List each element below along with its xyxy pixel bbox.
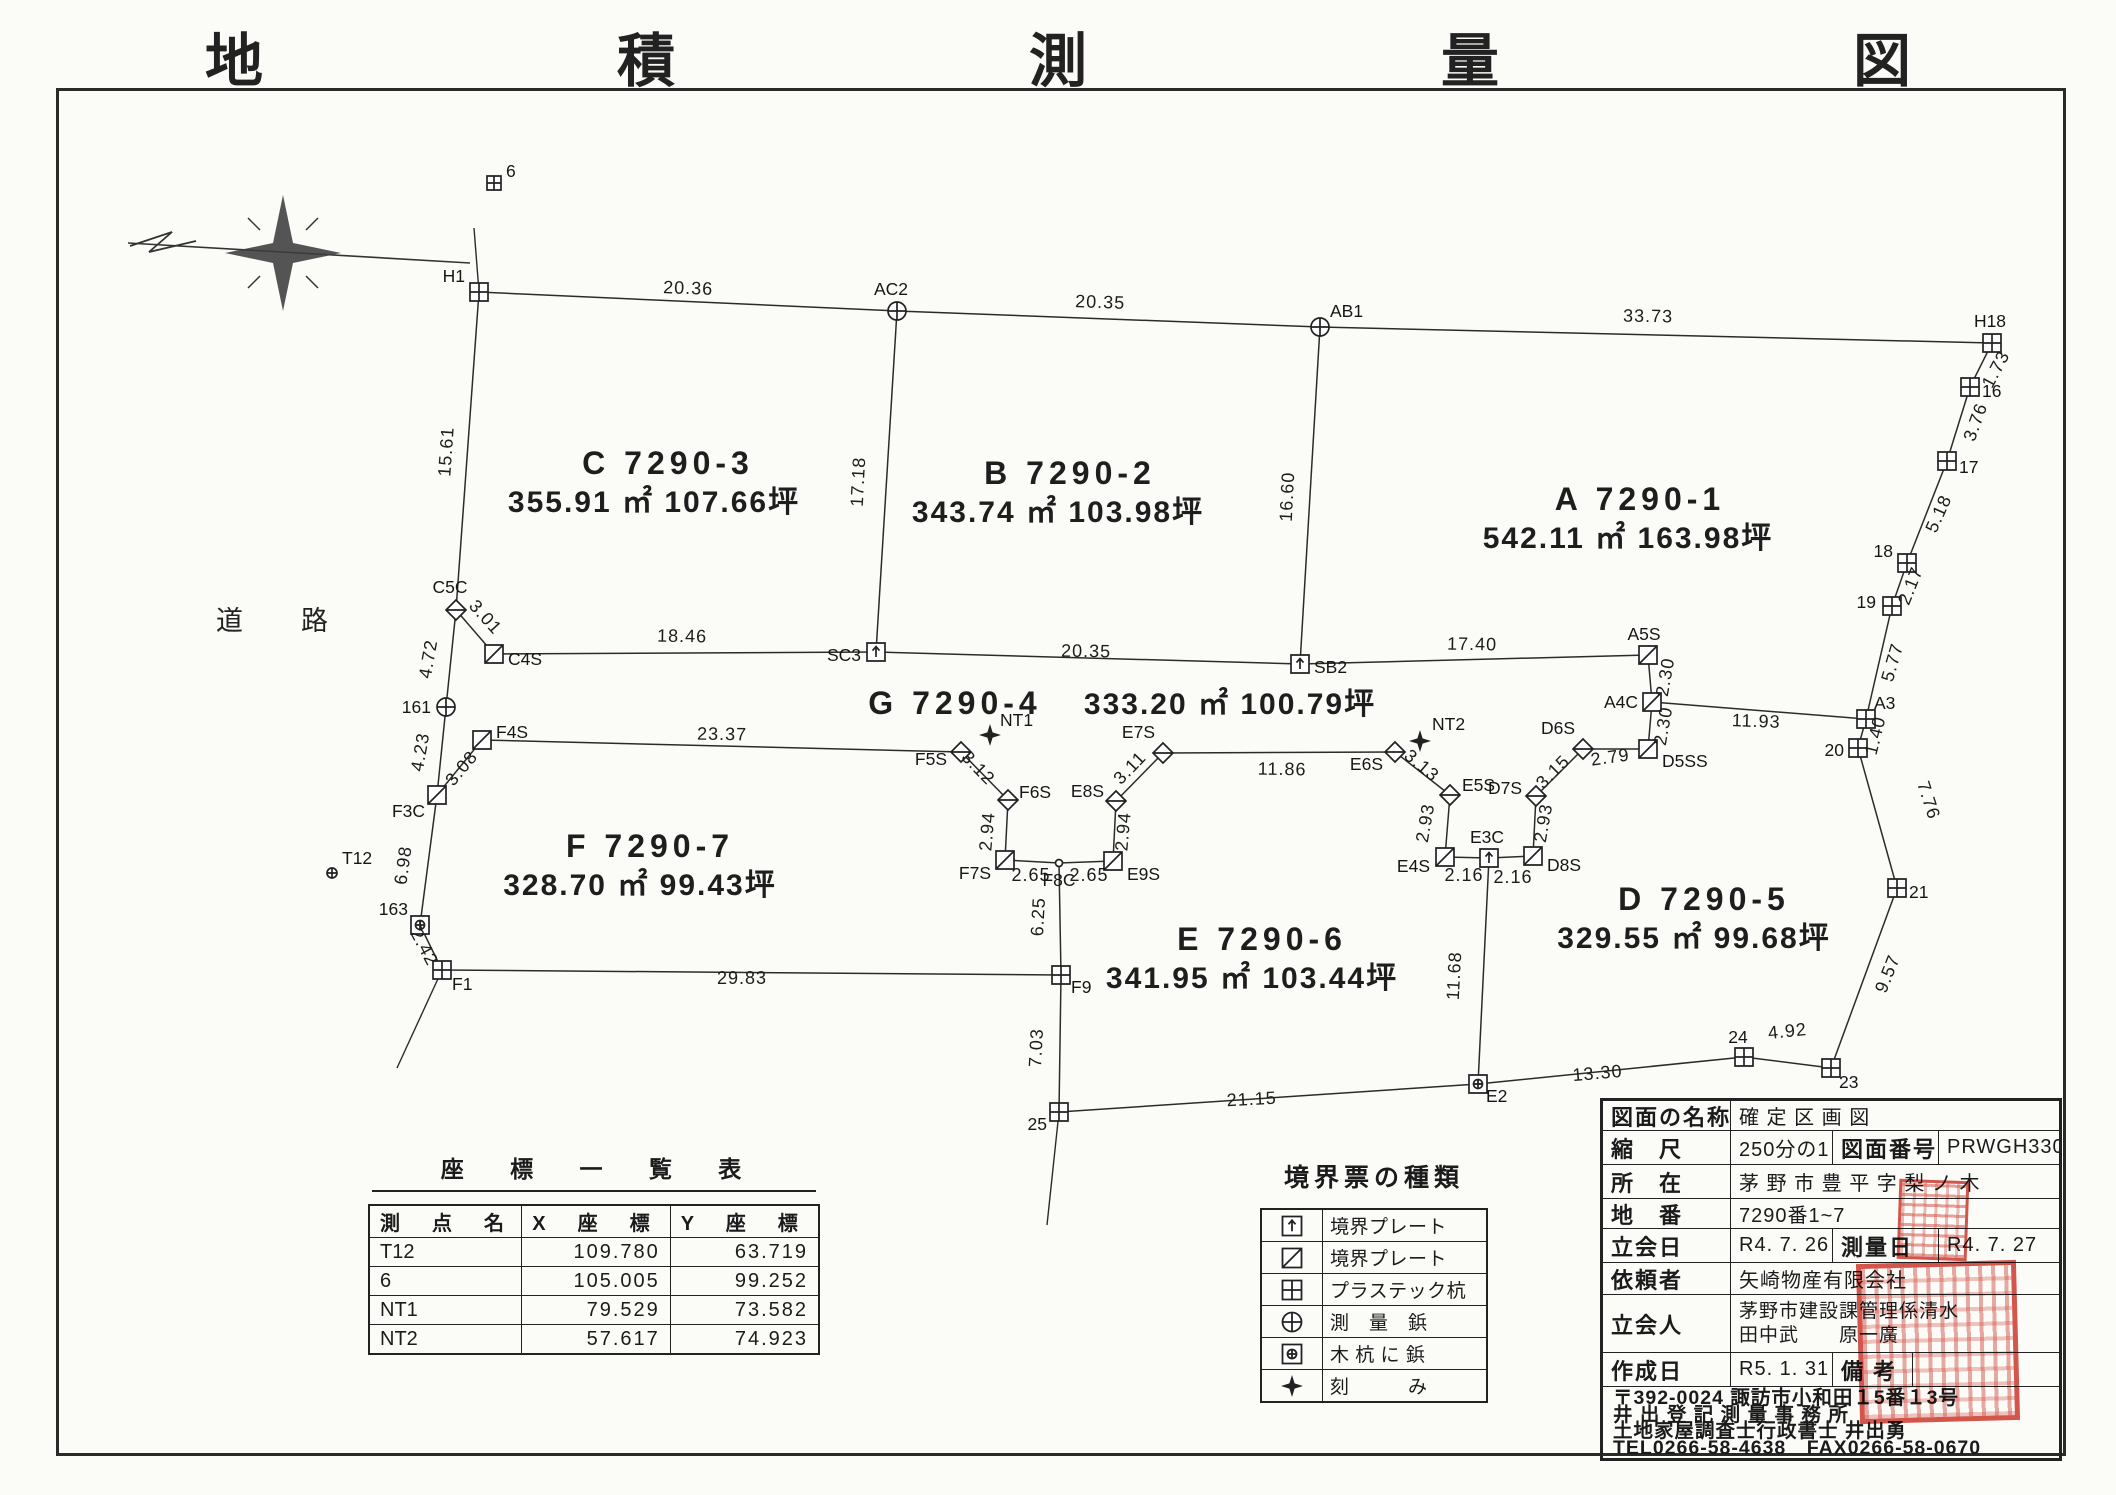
dimension-label: 11.86	[1258, 759, 1307, 780]
parcel-label: 542.11 ㎡ 163.98坪	[1483, 521, 1774, 555]
dimension-label: 5.18	[1921, 492, 1955, 536]
legend-label: プラステック杭	[1323, 1274, 1486, 1305]
info-table-row: 地 番7290番1~7	[1603, 1199, 2059, 1229]
boundary-marker-legend: 境界票の種類 境界プレート境界プレートプラステック杭測 量 鋲木 杭 に 鋲刻 …	[1260, 1158, 1488, 1403]
info-table-label: 縮 尺	[1603, 1131, 1731, 1164]
survey-point-label-E7S: E7S	[1122, 722, 1155, 742]
coordinate-table-title: 座 標 一 覧 表	[372, 1150, 816, 1192]
dimension-label: 2.79	[1589, 744, 1630, 769]
dimension-label: 18.46	[657, 626, 707, 647]
survey-sheet: { "title": "地 積 測 量 図", "road_label": "道…	[0, 0, 2116, 1495]
dimension-label: 7.03	[1025, 1028, 1047, 1068]
boundary-line	[1300, 327, 1320, 664]
parcel-label: 343.74 ㎡ 103.98坪	[912, 495, 1204, 529]
parcel-label: D 7290-5	[1618, 881, 1790, 917]
info-table-value: R5. 1. 31	[1731, 1353, 1833, 1386]
dimension-label: 17.40	[1447, 634, 1497, 655]
boundary-line	[437, 707, 446, 795]
survey-point-marker-SB2	[1291, 655, 1309, 673]
survey-point-label-SC3: SC3	[827, 645, 861, 665]
red-seal-stamp-small	[1897, 1179, 1970, 1261]
dimension-label: 11.68	[1443, 951, 1466, 1001]
info-table-label: 立会人	[1603, 1295, 1731, 1352]
parcel-label: 328.70 ㎡ 99.43坪	[503, 868, 777, 902]
boundary-line	[1300, 655, 1648, 664]
coordinate-table-row: NT257.61774.923	[369, 1325, 819, 1355]
dimension-label: 2.65	[1011, 865, 1050, 885]
survey-point-marker-161	[437, 698, 455, 716]
survey-point-marker-AB1	[1311, 318, 1329, 336]
info-table-row: 所 在茅 野 市 豊 平 字 梨 ノ 木	[1603, 1165, 2059, 1199]
survey-point-label-C5C: C5C	[432, 577, 467, 597]
dimension-label: 3.15	[1532, 751, 1574, 793]
survey-point-label-A5S: A5S	[1627, 624, 1660, 644]
legend-title: 境界票の種類	[1260, 1158, 1488, 1194]
survey-point-marker-24	[1735, 1048, 1753, 1066]
coordinate-table-header: Y 座 標	[670, 1205, 819, 1238]
boundary-line	[446, 610, 456, 707]
info-table-value: PRWGH330	[1939, 1131, 2059, 1164]
survey-point-label-C4S: C4S	[508, 649, 542, 669]
red-seal-stamp-large	[1856, 1260, 2020, 1424]
dimension-label: 23.37	[697, 724, 747, 745]
boundary-line	[897, 311, 1320, 327]
survey-point-label-F7S: F7S	[959, 863, 991, 883]
info-table-label: 図面の名称	[1603, 1101, 1731, 1130]
survey-point-label-D8S: D8S	[1547, 855, 1581, 875]
dimension-label: 11.93	[1732, 710, 1781, 732]
info-table-label: 地 番	[1603, 1199, 1731, 1228]
survey-point-label-NT2: NT2	[1432, 714, 1465, 734]
survey-point-label-17: 17	[1959, 457, 1978, 477]
survey-point-label-20: 20	[1825, 740, 1845, 760]
dimension-label: 20.35	[1075, 291, 1126, 313]
legend-row: 境界プレート	[1262, 1210, 1486, 1242]
chisel-mark-icon	[1262, 1370, 1323, 1401]
survey-point-label-E3C: E3C	[1470, 827, 1504, 847]
dimension-label: 3.01	[465, 596, 506, 638]
info-table-label: 作成日	[1603, 1353, 1731, 1386]
legend-row: プラステック杭	[1262, 1274, 1486, 1306]
dimension-label: 2.94	[975, 811, 998, 852]
info-table-label: 図面番号	[1833, 1131, 1939, 1164]
parcel-label: A 7290-1	[1555, 481, 1725, 517]
survey-point-label-E9S: E9S	[1127, 864, 1160, 884]
info-table-label: 依頼者	[1603, 1263, 1731, 1294]
dimension-label: 21.15	[1226, 1088, 1277, 1111]
boundary-line	[1059, 975, 1061, 1112]
survey-point-label-25: 25	[1028, 1114, 1047, 1134]
survey-point-marker-16	[1961, 378, 1979, 396]
parcel-label: B 7290-2	[984, 455, 1156, 491]
survey-point-label-21: 21	[1909, 882, 1928, 902]
survey-point-marker-F4S	[473, 731, 491, 749]
dimension-label: 15.61	[434, 426, 457, 477]
boundary-line-trail	[397, 970, 442, 1068]
legend-row: 境界プレート	[1262, 1242, 1486, 1274]
boundary-line-trail	[1047, 1112, 1059, 1225]
boundary-line	[494, 652, 876, 654]
survey-point-marker-T12	[327, 868, 337, 878]
survey-point-label-H18: H18	[1974, 311, 2006, 331]
info-table-row: 立会日R4. 7. 26測量日R4. 7. 27	[1603, 1229, 2059, 1263]
boundary-plate-diagonal-icon	[1262, 1242, 1323, 1273]
dimension-label: 29.83	[717, 968, 767, 988]
survey-nail-icon	[1262, 1306, 1323, 1337]
survey-point-label-163: 163	[379, 899, 408, 919]
parcel-label: 329.55 ㎡ 99.68坪	[1557, 921, 1831, 955]
info-table-label: 立会日	[1603, 1229, 1731, 1262]
survey-point-marker-23	[1822, 1059, 1840, 1077]
survey-point-label-D6S: D6S	[1541, 718, 1575, 738]
dimension-label: 7.76	[1913, 778, 1944, 821]
nail-in-wood-stake-icon	[1262, 1338, 1323, 1369]
parcel-label: E 7290-6	[1177, 921, 1347, 957]
coordinate-table: 座 標 一 覧 表 測 点 名X 座 標Y 座 標 T12109.78063.7…	[368, 1150, 820, 1355]
dimension-label: 6.25	[1027, 897, 1049, 937]
survey-point-label-161: 161	[402, 697, 431, 717]
legend-box: 境界プレート境界プレートプラステック杭測 量 鋲木 杭 に 鋲刻 み	[1260, 1208, 1488, 1403]
coordinate-value-cell: 109.780	[522, 1238, 671, 1267]
survey-point-marker-25	[1050, 1103, 1068, 1121]
survey-point-label-A4C: A4C	[1604, 692, 1638, 712]
surveyor-office-footer-line: TEL0266-58-4638 FAX0266-58-0670	[1613, 1440, 2051, 1457]
coordinate-table-header: X 座 標	[522, 1205, 671, 1238]
survey-point-marker-E5S	[1440, 785, 1460, 805]
survey-point-label-F3C: F3C	[392, 801, 425, 821]
survey-point-label-23: 23	[1839, 1072, 1858, 1092]
dimension-label: 4.23	[407, 731, 433, 773]
info-table-value: 確 定 区 画 図	[1731, 1101, 2059, 1130]
coordinate-table-header: 測 点 名	[369, 1205, 522, 1238]
survey-point-marker-NT1	[979, 724, 1001, 746]
road-label: 道路	[216, 606, 386, 636]
legend-row: 測 量 鋲	[1262, 1306, 1486, 1338]
survey-point-label-E2: E2	[1486, 1086, 1507, 1106]
boundary-line	[876, 311, 897, 652]
survey-point-label-18: 18	[1874, 541, 1893, 561]
survey-point-label-E4S: E4S	[1397, 856, 1430, 876]
legend-row: 刻 み	[1262, 1370, 1486, 1401]
dimension-label: 16.60	[1276, 471, 1299, 522]
survey-point-marker-F8C	[1056, 860, 1063, 867]
point-name-cell: 6	[369, 1267, 522, 1296]
dimension-label: 4.72	[415, 638, 441, 680]
survey-point-label-F4S: F4S	[496, 722, 528, 742]
plastic-stake-icon	[1262, 1274, 1323, 1305]
info-table-value: 茅 野 市 豊 平 字 梨 ノ 木	[1731, 1165, 2059, 1198]
survey-point-label-F9: F9	[1071, 977, 1091, 997]
coordinate-table-row: NT179.52973.582	[369, 1296, 819, 1325]
coordinate-value-cell: 57.617	[522, 1325, 671, 1355]
survey-point-label-A3: A3	[1874, 693, 1895, 713]
survey-point-marker-E4S	[1436, 848, 1454, 866]
dimension-label: 3.13	[1400, 745, 1443, 785]
dimension-label: 13.30	[1572, 1061, 1624, 1085]
survey-point-marker-C4S	[485, 645, 503, 663]
boundary-line	[456, 292, 479, 610]
survey-point-label-T12: T12	[342, 848, 372, 868]
survey-point-marker-A5S	[1639, 646, 1657, 664]
survey-point-marker-SC3	[867, 643, 885, 661]
parcel-label: G 7290-4	[868, 685, 1041, 721]
survey-point-marker-AC2	[888, 302, 906, 320]
info-table-value: R4. 7. 26	[1731, 1229, 1833, 1262]
survey-point-label-SB2: SB2	[1314, 657, 1347, 677]
coordinate-value-cell: 63.719	[670, 1238, 819, 1267]
info-table-value: 7290番1~7	[1731, 1199, 2059, 1228]
dimension-label: 6.98	[390, 844, 415, 885]
dimension-label: 33.73	[1623, 306, 1673, 327]
dimension-label: 1.73	[1978, 347, 2014, 391]
survey-point-label-19: 19	[1857, 592, 1876, 612]
parcel-label: C 7290-3	[582, 445, 754, 481]
coordinate-value-cell: 73.582	[670, 1296, 819, 1325]
dimension-label: 2.94	[1111, 811, 1134, 852]
survey-point-marker-17	[1938, 452, 1956, 470]
coordinate-value-cell: 99.252	[670, 1267, 819, 1296]
coordinate-table-header-row: 測 点 名X 座 標Y 座 標	[369, 1205, 819, 1238]
legend-row: 木 杭 に 鋲	[1262, 1338, 1486, 1370]
survey-point-label-AC2: AC2	[874, 279, 908, 299]
dimension-label: 2.65	[1069, 865, 1108, 885]
survey-point-marker-F3C	[428, 786, 446, 804]
coordinate-table-row: T12109.78063.719	[369, 1238, 819, 1267]
dimension-label: 2.16	[1444, 865, 1483, 885]
coordinate-value-cell: 74.923	[670, 1325, 819, 1355]
info-table-row: 図面の名称確 定 区 画 図	[1603, 1101, 2059, 1131]
legend-label: 木 杭 に 鋲	[1323, 1338, 1486, 1369]
coordinate-table-row: 6105.00599.252	[369, 1267, 819, 1296]
boundary-line	[1858, 748, 1897, 888]
survey-point-label-F5S: F5S	[915, 749, 947, 769]
parcel-label: 341.95 ㎡ 103.44坪	[1106, 961, 1398, 995]
survey-point-label-H1: H1	[443, 266, 465, 286]
survey-point-label-D7S: D7S	[1488, 778, 1522, 798]
coordinate-value-cell: 79.529	[522, 1296, 671, 1325]
info-table-value: 250分の1	[1731, 1131, 1833, 1164]
dimension-label: 2.16	[1493, 867, 1532, 887]
dimension-label: 17.18	[847, 456, 870, 507]
parcel-label: F 7290-7	[566, 828, 734, 864]
survey-point-label-AB1: AB1	[1330, 301, 1363, 321]
survey-point-marker-6	[487, 176, 501, 190]
north-compass-icon	[128, 195, 470, 311]
info-table-label: 所 在	[1603, 1165, 1731, 1198]
survey-point-marker-H1	[470, 283, 488, 301]
legend-label: 境界プレート	[1323, 1210, 1486, 1241]
survey-point-label-24: 24	[1728, 1027, 1748, 1047]
survey-point-marker-21	[1888, 879, 1906, 897]
survey-point-label-D5SS: D5SS	[1662, 751, 1708, 771]
coordinate-value-cell: 105.005	[522, 1267, 671, 1296]
boundary-line	[1163, 752, 1395, 753]
legend-label: 測 量 鋲	[1323, 1306, 1486, 1337]
survey-point-marker-F9	[1052, 966, 1070, 984]
boundary-line	[1744, 1057, 1831, 1068]
boundary-plate-arrow-icon	[1262, 1210, 1323, 1241]
boundary-line	[1320, 327, 1992, 343]
dimension-label: 3.11	[1109, 747, 1150, 788]
dimension-label: 20.35	[1061, 641, 1111, 662]
survey-point-label-E6S: E6S	[1350, 754, 1383, 774]
survey-point-marker-E2	[1469, 1075, 1487, 1093]
dimension-label: 2.42	[406, 925, 442, 969]
dimension-label: 20.36	[663, 277, 714, 299]
survey-point-label-E8S: E8S	[1071, 781, 1104, 801]
survey-point-label-6: 6	[506, 161, 516, 181]
point-name-cell: NT2	[369, 1325, 522, 1355]
survey-point-label-F1: F1	[452, 974, 472, 994]
survey-point-marker-F1	[433, 961, 451, 979]
info-table-row: 縮 尺250分の1図面番号PRWGH330	[1603, 1131, 2059, 1165]
dimension-label: 2.93	[1412, 802, 1438, 844]
dimension-label: 9.57	[1871, 952, 1904, 996]
parcel-label: 355.91 ㎡ 107.66坪	[508, 485, 800, 519]
dimension-label: 4.92	[1767, 1019, 1808, 1043]
survey-point-label-F6S: F6S	[1019, 782, 1051, 802]
survey-point-marker-D8S	[1524, 847, 1542, 865]
point-name-cell: NT1	[369, 1296, 522, 1325]
boundary-line	[1478, 858, 1489, 1084]
parcel-label: 333.20 ㎡ 100.79坪	[1084, 687, 1376, 721]
dimension-label: 2.93	[1530, 802, 1556, 844]
legend-label: 刻 み	[1323, 1370, 1486, 1401]
point-name-cell: T12	[369, 1238, 522, 1267]
coordinate-table-grid: 測 点 名X 座 標Y 座 標 T12109.78063.7196105.005…	[368, 1204, 820, 1355]
legend-label: 境界プレート	[1323, 1242, 1486, 1273]
